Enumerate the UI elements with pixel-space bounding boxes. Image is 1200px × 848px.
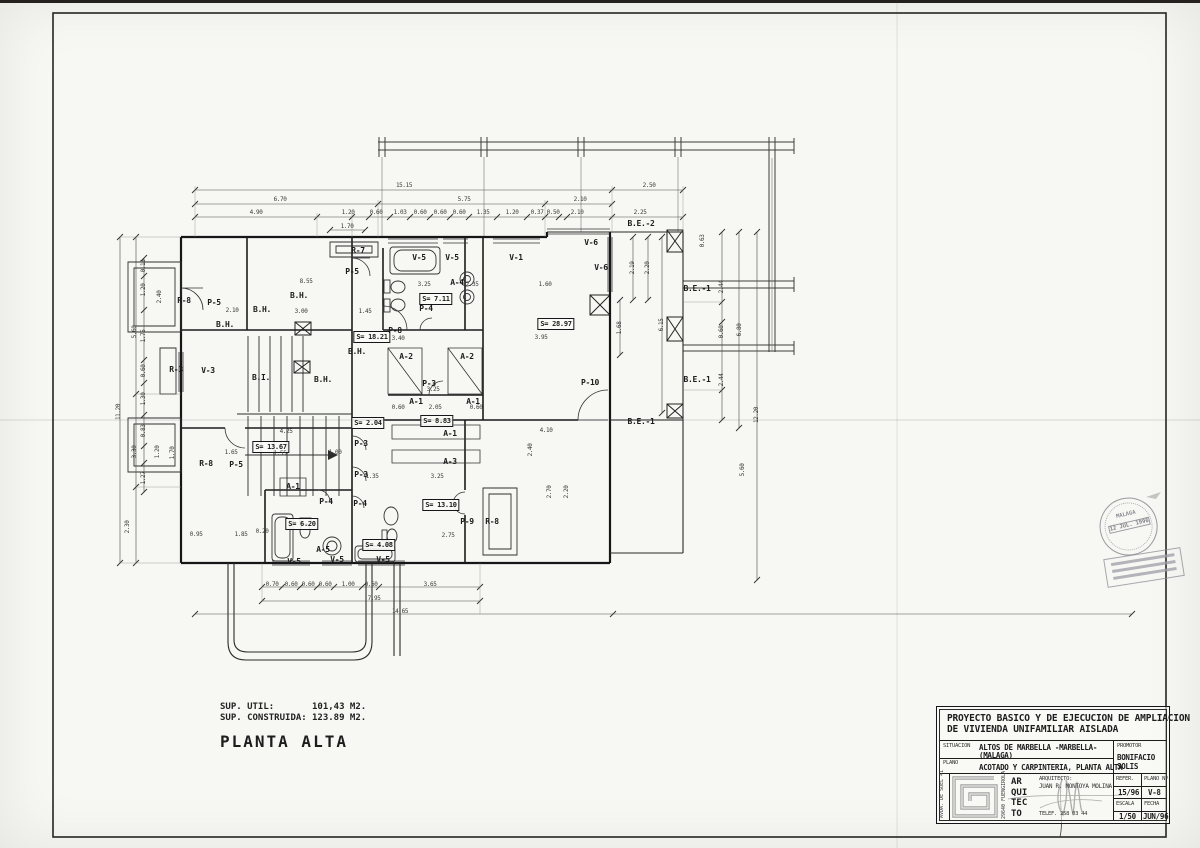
plan-label: B.E.-1 xyxy=(683,376,710,384)
dimension-label: 4.25 xyxy=(280,429,293,435)
dimension-label: 2.10 xyxy=(226,308,239,314)
promotor-value: BONIFACIO SOLIS xyxy=(1117,753,1169,771)
arq-line: AR xyxy=(1011,777,1027,788)
area-label: S= 2.04 xyxy=(351,417,384,429)
plan-label: P-5 xyxy=(345,268,359,276)
arq-line: QUI xyxy=(1011,788,1027,799)
plan-label: V-6 xyxy=(584,239,598,247)
dimension-label: 6.15 xyxy=(659,319,665,332)
area-label: S= 8.83 xyxy=(420,415,453,427)
divider xyxy=(940,740,1166,741)
dimension-label: 2.40 xyxy=(157,291,163,304)
plano-num-label: PLANO Nº xyxy=(1144,776,1168,782)
plan-label: V-3 xyxy=(201,367,215,375)
plan-label: P-4 xyxy=(353,500,367,508)
divider xyxy=(940,758,1113,759)
project-title-line2: DE VIVIENDA UNIFAMILIAR AISLADA xyxy=(947,724,1190,735)
dimension-label: 1.70 xyxy=(170,447,176,460)
dimension-label: 2.35 xyxy=(466,282,479,288)
dimension-label: 7.95 xyxy=(368,596,381,602)
plan-label: B.E.-1 xyxy=(627,418,654,426)
dimension-label: 3.25 xyxy=(431,474,444,480)
address-vertical: AVDA. DE SUEL 41 xyxy=(939,774,945,818)
fecha-value: JUN/96 xyxy=(1143,812,1168,821)
project-title: PROYECTO BASICO Y DE EJECUCION DE AMPLIA… xyxy=(947,713,1190,735)
plan-label: P-9 xyxy=(460,518,474,526)
plan-label: B.H. xyxy=(314,376,332,384)
dimension-label: 2.25 xyxy=(634,210,647,216)
dimension-label: 0.60 xyxy=(319,582,332,588)
area-label: S= 18.21 xyxy=(353,331,390,343)
dimension-label: 1.68 xyxy=(617,322,623,335)
dimension-label: 4.10 xyxy=(540,428,553,434)
plan-label: P-5 xyxy=(229,461,243,469)
plan-label: V-5 xyxy=(376,556,390,564)
plan-label: P-4 xyxy=(419,305,433,313)
dimension-label: 2.10 xyxy=(574,197,587,203)
dimension-label: 0.60 xyxy=(434,210,447,216)
plan-label: B.H. xyxy=(253,306,271,314)
plan-label: B.H. xyxy=(216,321,234,329)
divider xyxy=(1113,786,1166,787)
dimension-label: 0.20 xyxy=(256,529,269,535)
plan-label: P-4 xyxy=(319,498,333,506)
plan-label: R-8 xyxy=(199,460,213,468)
plan-label: B.H. xyxy=(290,292,308,300)
plan-label: P-10 xyxy=(581,379,599,387)
plan-label: A-1 xyxy=(443,430,457,438)
sup-construida-row: SUP. CONSTRUIDA: 123.89 M2. xyxy=(220,713,366,724)
dimension-label: 0.83 xyxy=(141,425,147,438)
dimension-label: 0.60 xyxy=(141,365,147,378)
dimension-label: 14.65 xyxy=(392,609,408,615)
dimension-label: 2.20 xyxy=(645,262,651,275)
plan-label: V-5 xyxy=(445,254,459,262)
dimension-label: 8.55 xyxy=(300,279,313,285)
promotor-label: PROMOTOR xyxy=(1117,743,1141,749)
dimension-label: 0.50 xyxy=(547,210,560,216)
project-title-line1: PROYECTO BASICO Y DE EJECUCION DE AMPLIA… xyxy=(947,713,1190,724)
plan-label: P-3 xyxy=(354,440,368,448)
dimension-label: 5.75 xyxy=(458,197,471,203)
plan-label: V-1 xyxy=(509,254,523,262)
area-label: S= 4.08 xyxy=(362,539,395,551)
arq-line: TO xyxy=(1011,809,1027,820)
plan-label: A-1 xyxy=(409,398,423,406)
dimension-label: 0.70 xyxy=(266,582,279,588)
dimension-label: 1.20 xyxy=(141,284,147,297)
dimension-label: 1.00 xyxy=(329,450,342,456)
dimension-label: 1.45 xyxy=(359,309,372,315)
sup-construida-value: 123.89 M2. xyxy=(312,713,366,724)
dimension-label: 0.60 xyxy=(365,582,378,588)
plano-num-value: V-8 xyxy=(1148,788,1161,797)
dimension-label: 0.60 xyxy=(370,210,383,216)
dimension-label: 1.85 xyxy=(235,532,248,538)
refer-value: 15/96 xyxy=(1118,788,1139,797)
dimension-label: 1.55 xyxy=(274,451,287,457)
dimension-label: 2.20 xyxy=(564,486,570,499)
dimension-label: 0.37 xyxy=(531,210,544,216)
divider xyxy=(1141,773,1142,820)
dimension-label: 2.44 xyxy=(719,281,725,294)
scanned-plan-sheet: R-7P-5R-8P-5B.H.B.H.B.H.B.H.S= 18.21P-8B… xyxy=(0,0,1200,848)
dimension-label: 0.60 xyxy=(453,210,466,216)
plan-label: V-5 xyxy=(412,254,426,262)
dimension-label: 1.35 xyxy=(366,474,379,480)
plan-label: R-7 xyxy=(351,247,365,255)
dimension-label: 1.20 xyxy=(506,210,519,216)
sup-util-row: SUP. UTIL: 101,43 M2. xyxy=(220,702,366,713)
sup-util-label: SUP. UTIL: xyxy=(220,702,312,713)
dimension-label: 3.40 xyxy=(392,336,405,342)
plan-label: R-3 xyxy=(169,366,183,374)
divider xyxy=(1113,798,1166,799)
dimension-label: 3.65 xyxy=(424,582,437,588)
dimension-label: 2.50 xyxy=(643,183,656,189)
dimension-label: 4.90 xyxy=(250,210,263,216)
dimension-label: 5.60 xyxy=(740,464,746,477)
dimension-label: 1.30 xyxy=(141,393,147,406)
dimension-label: 12.20 xyxy=(754,407,760,423)
plan-label: B.E.-1 xyxy=(683,285,710,293)
dimension-label: 2.40 xyxy=(528,444,534,457)
divider xyxy=(940,773,1166,774)
postal-vertical: 29640 FUENGIROLA xyxy=(1001,773,1007,819)
dimension-label: 6.80 xyxy=(737,324,743,337)
plan-label: V-5 xyxy=(330,556,344,564)
escala-label: ESCALA xyxy=(1116,801,1134,807)
refer-label: REFER. xyxy=(1116,776,1134,782)
dimension-label: 1.20 xyxy=(155,446,161,459)
dimension-label: 1.03 xyxy=(394,210,407,216)
divider xyxy=(1113,740,1114,820)
dimension-label: 1.00 xyxy=(342,582,355,588)
dimension-label: 2.70 xyxy=(547,486,553,499)
plan-label: P-8 xyxy=(388,327,402,335)
arquitecto-word: AR QUI TEC TO xyxy=(1011,777,1027,819)
dimension-label: 3.30 xyxy=(132,446,138,459)
dimension-label: 11.20 xyxy=(116,404,122,420)
plan-label: A-2 xyxy=(460,353,474,361)
dimension-label: 0.60 xyxy=(302,582,315,588)
plan-label: V-5 xyxy=(287,558,301,566)
situacion-label: SITUACION xyxy=(943,743,970,749)
area-label: S= 13.10 xyxy=(422,499,459,511)
dimension-label: 0.60 xyxy=(285,582,298,588)
dimension-label: 15.15 xyxy=(396,183,412,189)
plan-label: B.I. xyxy=(252,374,270,382)
dimension-label: 3.25 xyxy=(418,282,431,288)
sup-construida-label: SUP. CONSTRUIDA: xyxy=(220,713,312,724)
arquitecto-value: JUAN R. MONTOYA MOLINA xyxy=(1039,783,1112,790)
dimension-label: 5.60 xyxy=(132,326,138,339)
dimension-label: 1.60 xyxy=(539,282,552,288)
plan-label: A-3 xyxy=(443,458,457,466)
dimension-label: 0.60 xyxy=(392,405,405,411)
floor-title: PLANTA ALTA xyxy=(220,732,366,751)
area-summary: SUP. UTIL: 101,43 M2. SUP. CONSTRUIDA: 1… xyxy=(220,702,366,751)
dimension-label: 2.19 xyxy=(630,262,636,275)
telef-value: TELEF. 258 03 44 xyxy=(1039,811,1087,817)
plan-label: R-8 xyxy=(177,297,191,305)
dimension-label: 3.95 xyxy=(535,335,548,341)
dimension-label: 2.75 xyxy=(442,533,455,539)
dimension-label: 1.35 xyxy=(477,210,490,216)
plan-label: A-1 xyxy=(286,483,300,491)
dimension-label: 0.60 xyxy=(414,210,427,216)
dimension-label: 0.63 xyxy=(700,235,706,248)
plan-label: P-5 xyxy=(207,299,221,307)
dimension-label: 2.10 xyxy=(571,210,584,216)
plan-label: B.E.-2 xyxy=(627,220,654,228)
plan-label: R-8 xyxy=(485,518,499,526)
area-label: S= 6.20 xyxy=(285,518,318,530)
dimension-label: 0.15 xyxy=(141,260,147,273)
plan-label: A-5 xyxy=(316,546,330,554)
dimension-label: 6.70 xyxy=(274,197,287,203)
situacion-value2: (MALAGA) xyxy=(979,751,1013,760)
dimension-label: 3.25 xyxy=(427,387,440,393)
plano-label: PLANO xyxy=(943,760,958,766)
plan-label: B.H. xyxy=(348,348,366,356)
plan-label: V-6 xyxy=(594,264,608,272)
fecha-label: FECHA xyxy=(1144,801,1159,807)
dimension-label: 1.65 xyxy=(225,450,238,456)
dimension-label: 1.75 xyxy=(141,330,147,343)
area-label: S= 28.97 xyxy=(537,318,574,330)
sup-util-value: 101,43 M2. xyxy=(312,702,366,713)
escala-value: 1/50 xyxy=(1119,812,1136,821)
arq-line: TEC xyxy=(1011,798,1027,809)
dimension-label: 1.20 xyxy=(342,210,355,216)
dimension-label: 0.95 xyxy=(190,532,203,538)
dimension-label: 1.70 xyxy=(341,224,354,230)
dimension-label: 3.00 xyxy=(295,309,308,315)
dimension-label: 1.27 xyxy=(141,472,147,485)
dimension-label: 0.60 xyxy=(470,405,483,411)
title-block: PROYECTO BASICO Y DE EJECUCION DE AMPLIA… xyxy=(936,706,1170,824)
dimension-label: 0.60 xyxy=(719,326,725,339)
dimension-label: 2.30 xyxy=(125,521,131,534)
dimension-label: 2.44 xyxy=(719,374,725,387)
divider xyxy=(949,773,950,820)
arquitecto-label: ARQUITECTO: xyxy=(1039,776,1072,782)
plan-label: A-4 xyxy=(450,279,464,287)
dimension-label: 2.05 xyxy=(429,405,442,411)
plan-label: A-2 xyxy=(399,353,413,361)
